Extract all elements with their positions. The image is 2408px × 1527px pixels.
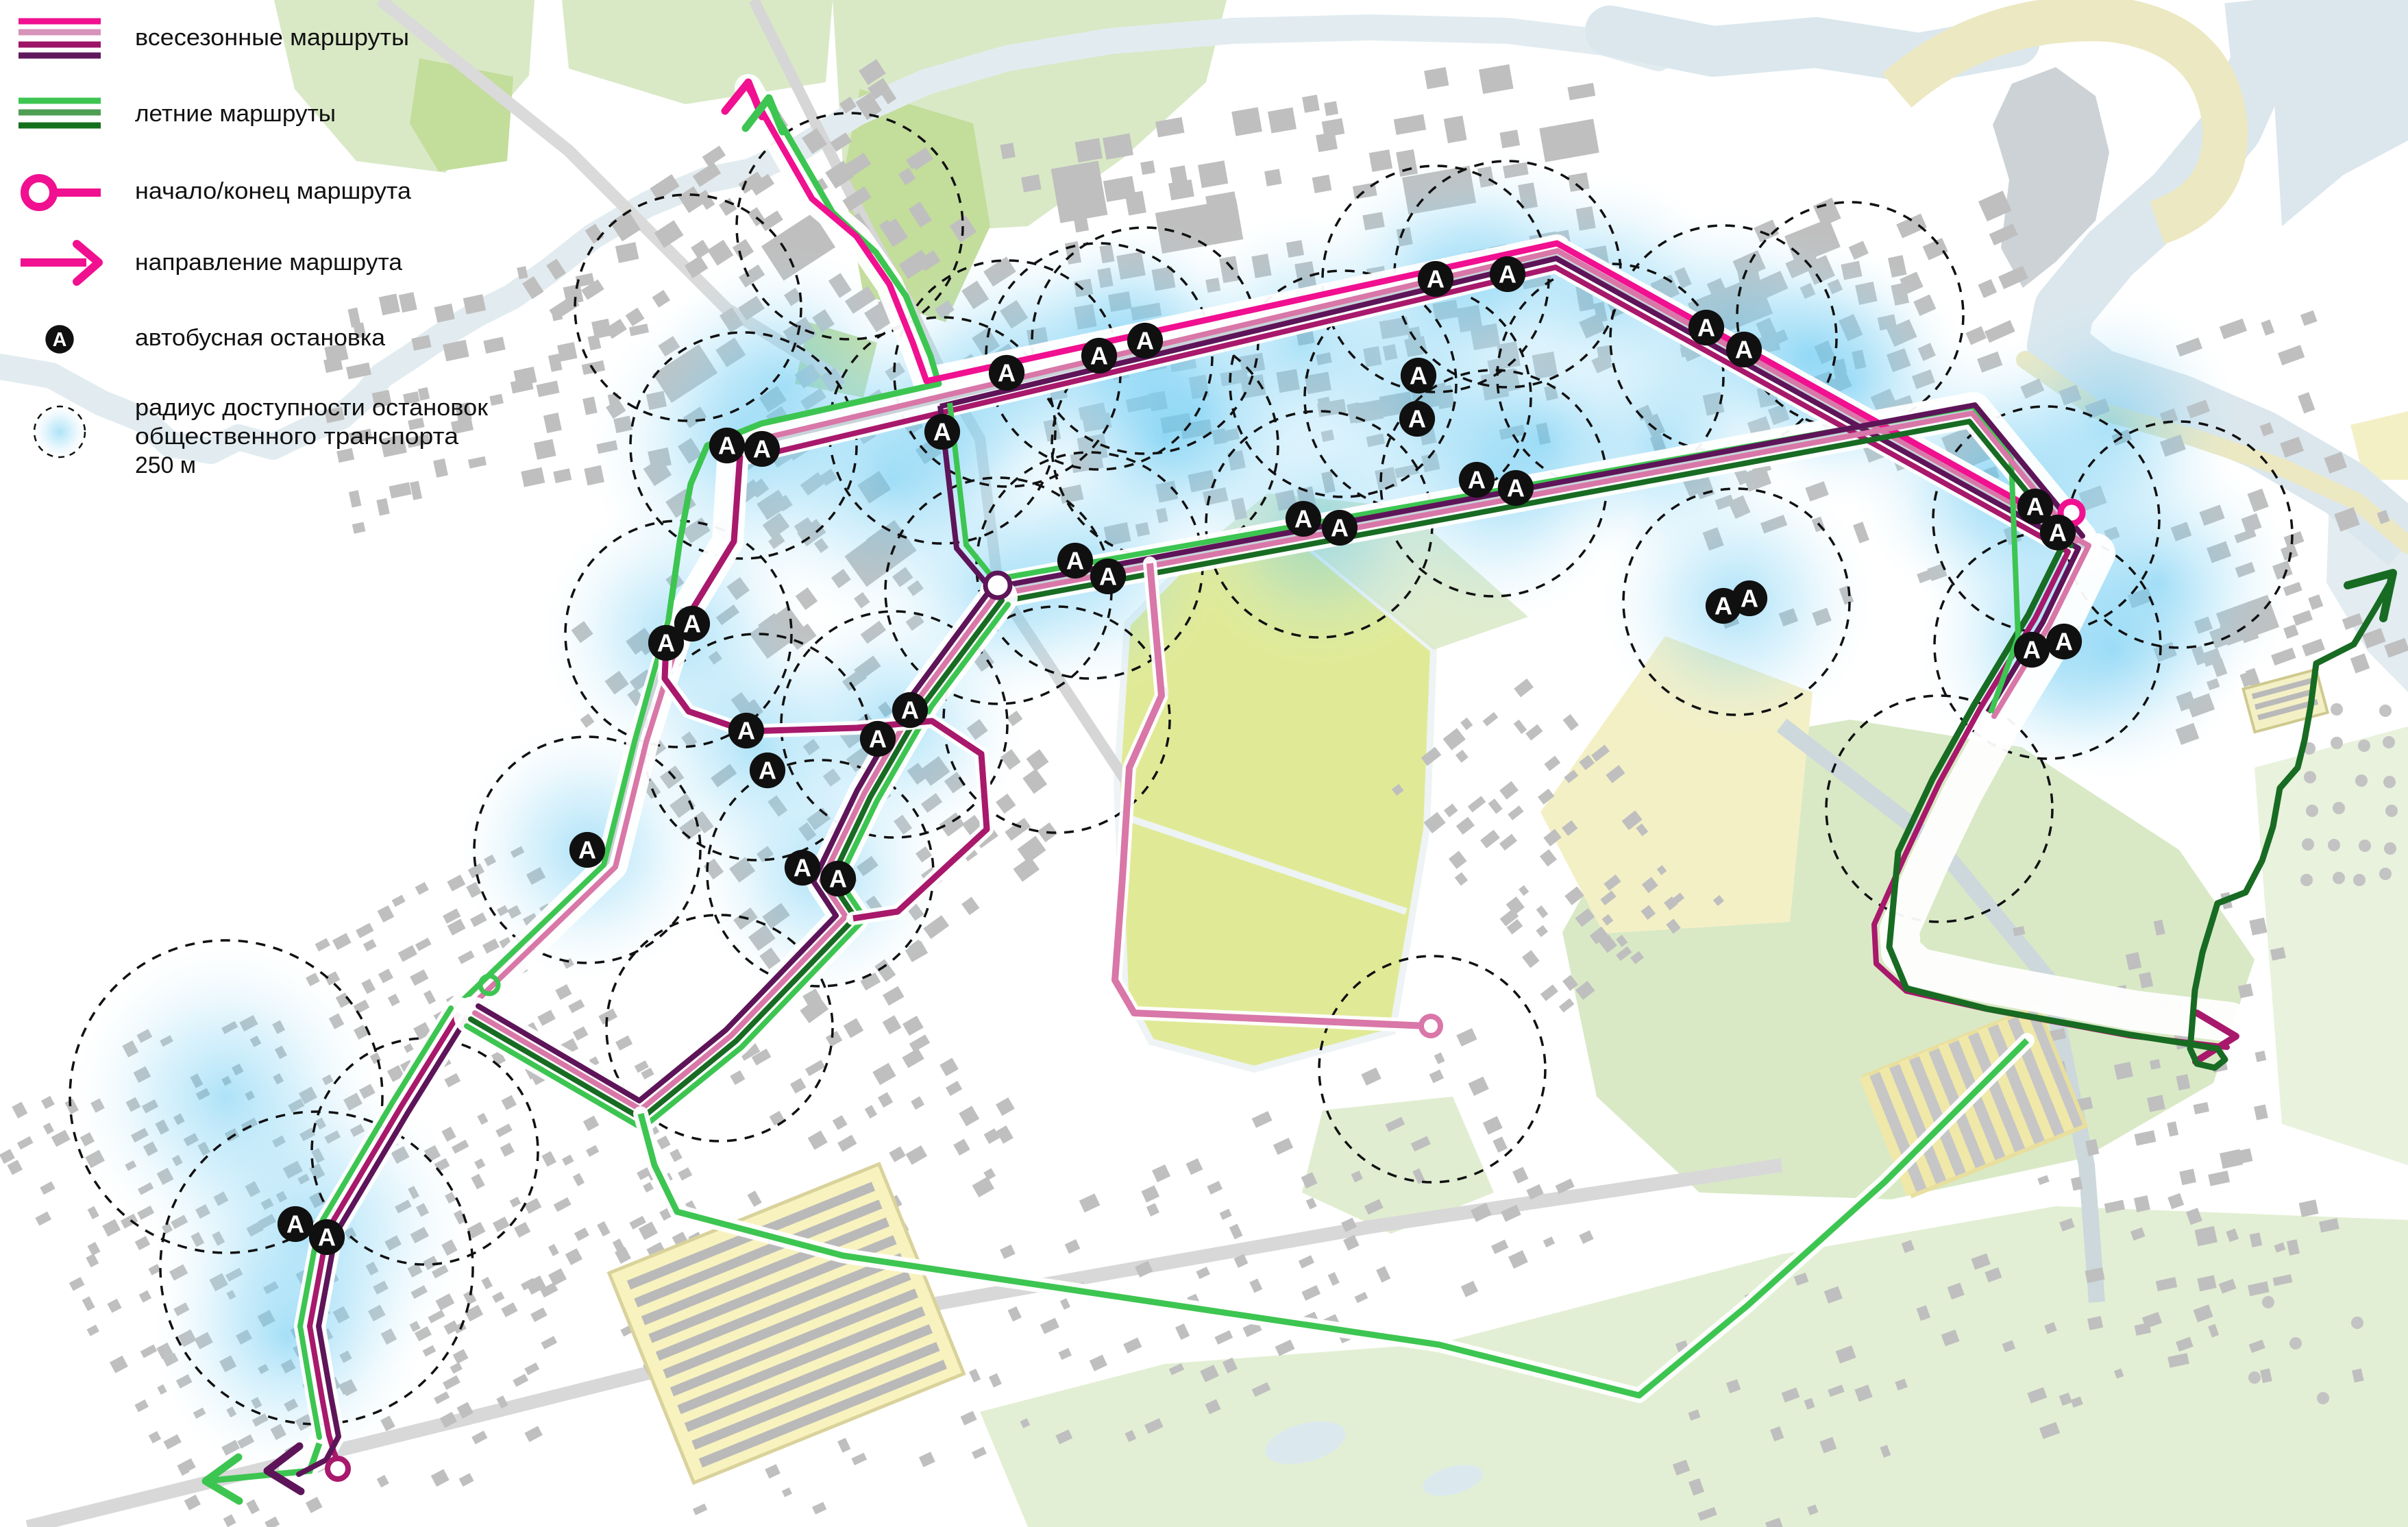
svg-text:начало/конец маршрута: начало/конец маршрута xyxy=(135,178,411,204)
svg-text:всесезонные маршруты: всесезонные маршруты xyxy=(135,25,409,51)
svg-text:радиус доступности остановок: радиус доступности остановок xyxy=(135,395,489,421)
svg-text:автобусная остановка: автобусная остановка xyxy=(135,325,385,351)
svg-text:летние маршруты: летние маршруты xyxy=(135,101,336,127)
svg-text:250 м: 250 м xyxy=(135,452,196,478)
svg-text:общественного транспорта: общественного транспорта xyxy=(135,424,458,450)
svg-text:направление маршрута: направление маршрута xyxy=(135,249,402,276)
